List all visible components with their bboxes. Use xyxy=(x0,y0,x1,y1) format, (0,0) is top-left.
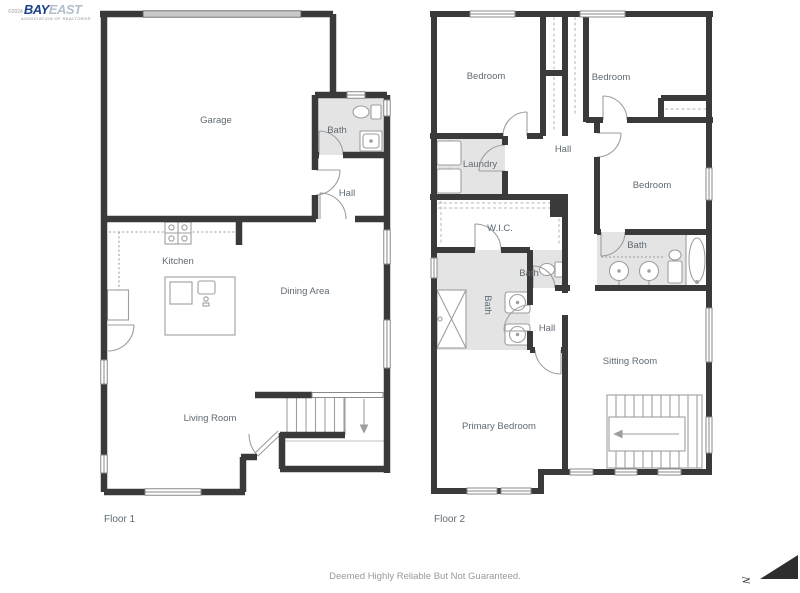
room-label-bath-small: Bath xyxy=(519,268,539,279)
room-label-bedroom-right: Bedroom xyxy=(633,180,672,191)
room-label-bath: Bath xyxy=(327,125,347,136)
north-arrow: N xyxy=(742,552,800,586)
bayeast-logo-wordmark: ©2024 BAYEAST xyxy=(8,3,91,16)
room-label-hall-lower: Hall xyxy=(539,323,555,334)
bathtub-icon xyxy=(686,234,708,287)
kitchen-island xyxy=(165,277,235,335)
stove-icon xyxy=(165,222,191,244)
room-label-living-room: Living Room xyxy=(184,413,237,424)
bayeast-logo: ©2024 BAYEAST ASSOCIATION OF REALTORS® xyxy=(8,3,91,21)
room-label-hall: Hall xyxy=(339,188,355,199)
floor1-plan: Garage Bath Hall Kitchen Dining Area Liv… xyxy=(95,5,400,520)
room-label-bedroom-tr: Bedroom xyxy=(592,72,631,83)
floor1-sink-icon xyxy=(360,131,382,151)
room-label-bedroom-tl: Bedroom xyxy=(467,71,506,82)
floor1-caption: Floor 1 xyxy=(104,514,135,525)
stairs-railing xyxy=(312,393,383,398)
garage-door xyxy=(143,11,301,17)
primary-bedroom-door xyxy=(535,350,561,374)
room-label-wic: W.I.C. xyxy=(487,223,513,234)
disclaimer-text: Deemed Highly Reliable But Not Guarantee… xyxy=(329,571,521,582)
room-label-dining-area: Dining Area xyxy=(280,286,330,297)
fridge-icon xyxy=(108,290,129,320)
wall-block xyxy=(550,197,568,217)
room-label-sitting-room: Sitting Room xyxy=(603,356,657,367)
room-label-bath-primary: Bath xyxy=(482,295,493,315)
room-label-kitchen: Kitchen xyxy=(162,256,194,267)
shower-icon xyxy=(437,290,466,348)
stairs-down-arrow xyxy=(361,425,368,433)
room-label-garage: Garage xyxy=(200,115,232,126)
bedroom-tr-door xyxy=(603,96,627,120)
hall-door xyxy=(316,170,340,195)
toilet-icon xyxy=(668,250,682,283)
north-arrow-icon xyxy=(756,552,800,582)
closet-rods xyxy=(438,17,706,245)
front-door xyxy=(249,431,281,456)
floor2-caption: Floor 2 xyxy=(434,514,465,525)
room-label-hall-upper: Hall xyxy=(555,144,571,155)
floor2-stairs xyxy=(607,395,702,468)
logo-tagline: ASSOCIATION OF REALTORS® xyxy=(21,17,91,21)
room-label-laundry: Laundry xyxy=(463,159,498,170)
room-label-bath-right: Bath xyxy=(627,240,647,251)
floor1-labels: Garage Bath Hall Kitchen Dining Area Liv… xyxy=(162,115,355,424)
bedroom-right-door xyxy=(597,133,621,157)
logo-brand-bay: BAY xyxy=(24,3,49,16)
floor2-plan: Bedroom Bedroom Bedroom Laundry Hall W.I… xyxy=(425,5,720,520)
logo-brand-east: EAST xyxy=(49,3,82,16)
bedroom-tl-door xyxy=(503,112,527,136)
room-label-primary-bedroom: Primary Bedroom xyxy=(462,421,536,432)
north-letter: N xyxy=(740,576,752,583)
pantry-door xyxy=(108,325,134,351)
